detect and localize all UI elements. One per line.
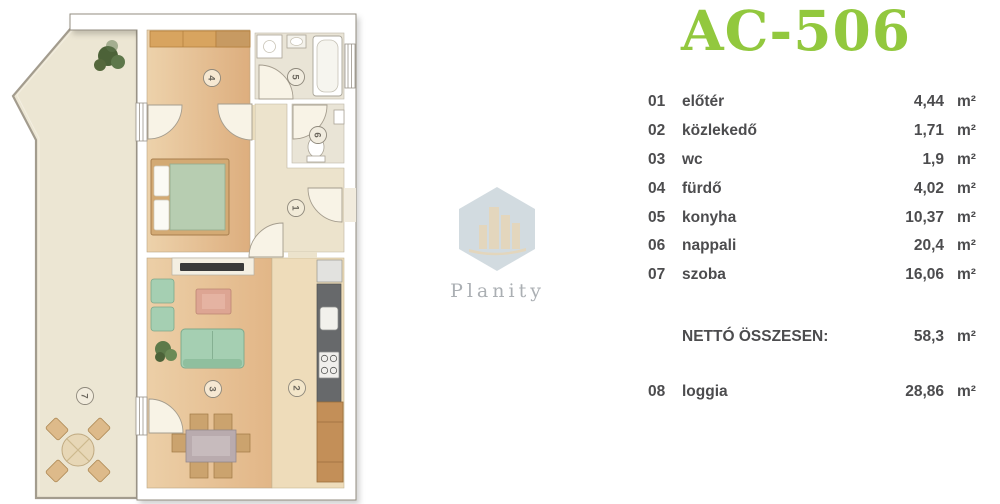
room-name: konyha	[682, 209, 866, 227]
room-number: 04	[648, 180, 682, 198]
watermark: Planity	[445, 185, 550, 295]
legend-loggia-row: 08 loggia 28,86 m²	[648, 377, 980, 406]
svg-text:1: 1	[290, 205, 301, 211]
room-label-wc: 6	[310, 127, 327, 144]
total-area: 58,3	[866, 328, 944, 346]
armchair	[151, 307, 174, 331]
legend: 01 előtér 4,44 m² 02 közlekedő 1,71 m² 0…	[648, 88, 980, 406]
room-number: 08	[648, 383, 682, 401]
room-name: wc	[682, 151, 866, 169]
legend-row: 03 wc 1,9 m²	[648, 146, 980, 175]
bed-cover	[170, 164, 225, 230]
area-unit: m²	[944, 209, 980, 227]
floorplan: 7 4 5 6 1 3 2	[0, 0, 380, 504]
room-number: 07	[648, 266, 682, 284]
window-bedroom-terrace	[136, 103, 147, 141]
room-area: 1,9	[866, 151, 944, 169]
chair	[172, 434, 186, 452]
area-unit: m²	[944, 122, 980, 140]
legend-row: 01 előtér 4,44 m²	[648, 88, 980, 117]
room-number: 06	[648, 237, 682, 255]
room-name: nappali	[682, 237, 866, 255]
legend-total-row: NETTÓ ÖSSZESEN: 58,3 m²	[648, 323, 980, 352]
room-label-bedroom: 4	[204, 70, 221, 87]
area-unit: m²	[944, 383, 980, 401]
legend-row: 06 nappali 20,4 m²	[648, 232, 980, 261]
room-loggia	[13, 21, 137, 498]
room-number: 03	[648, 151, 682, 169]
sofa-back	[183, 359, 242, 367]
window-bathroom	[345, 44, 355, 88]
stove	[319, 352, 339, 378]
area-unit: m²	[944, 328, 980, 346]
room-area: 20,4	[866, 237, 944, 255]
room-name: loggia	[682, 383, 866, 401]
legend-row: 04 fürdő 4,02 m²	[648, 174, 980, 203]
room-label-bathroom: 5	[288, 69, 305, 86]
unit-title: AC-506	[646, 0, 946, 66]
pillow	[154, 200, 169, 230]
area-unit: m²	[944, 180, 980, 198]
tv	[180, 263, 244, 271]
room-name: előtér	[682, 93, 866, 111]
room-number: 01	[648, 93, 682, 111]
chair	[214, 462, 232, 478]
room-label-loggia: 7	[77, 388, 94, 405]
legend-row: 05 konyha 10,37 m²	[648, 203, 980, 232]
room-name: szoba	[682, 266, 866, 284]
room-label-hall: 1	[288, 200, 305, 217]
fridge	[317, 260, 342, 282]
area-unit: m²	[944, 93, 980, 111]
hexagon-logo-shape	[459, 187, 535, 271]
room-area: 4,44	[866, 93, 944, 111]
room-name: fürdő	[682, 180, 866, 198]
svg-text:5: 5	[290, 74, 301, 80]
entry-threshold	[344, 188, 356, 222]
area-unit: m²	[944, 237, 980, 255]
kitchen-cabinet	[317, 402, 343, 482]
svg-text:2: 2	[291, 385, 302, 390]
area-unit: m²	[944, 151, 980, 169]
chair	[214, 414, 232, 430]
kitchen-furniture	[317, 260, 343, 482]
washing-machine	[257, 35, 282, 58]
window-living-terrace	[136, 397, 147, 435]
opening-hall-kitchen	[288, 252, 317, 258]
area-unit: m²	[944, 266, 980, 284]
wc-sink	[334, 110, 344, 124]
armchair	[151, 279, 174, 303]
chair	[236, 434, 250, 452]
room-area: 1,71	[866, 122, 944, 140]
room-area: 10,37	[866, 209, 944, 227]
watermark-brand: Planity	[445, 280, 550, 302]
room-number: 05	[648, 209, 682, 227]
legend-row: 02 közlekedő 1,71 m²	[648, 117, 980, 146]
watermark-logo	[445, 185, 550, 273]
svg-text:4: 4	[206, 75, 217, 81]
buildings-icon	[469, 207, 526, 255]
chair	[190, 414, 208, 430]
room-label-kitchen: 2	[289, 380, 306, 397]
kitchen-sink	[320, 307, 338, 330]
svg-text:6: 6	[312, 132, 323, 137]
room-name: közlekedő	[682, 122, 866, 140]
room-area: 4,02	[866, 180, 944, 198]
room-area: 28,86	[866, 383, 944, 401]
room-number: 02	[648, 122, 682, 140]
legend-row: 07 szoba 16,06 m²	[648, 261, 980, 290]
svg-text:7: 7	[79, 393, 90, 398]
room-label-living: 3	[205, 381, 222, 398]
total-label: NETTÓ ÖSSZESEN:	[682, 328, 866, 346]
pillow	[154, 166, 169, 196]
svg-text:3: 3	[207, 386, 218, 391]
room-area: 16,06	[866, 266, 944, 284]
kitchen-counter	[317, 284, 341, 402]
chair	[190, 462, 208, 478]
